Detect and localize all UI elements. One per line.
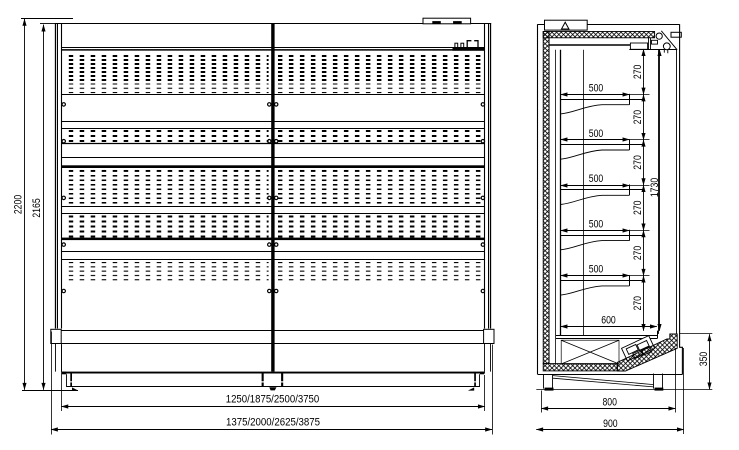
svg-text:270: 270 [632, 296, 644, 311]
svg-text:2200: 2200 [12, 195, 24, 214]
svg-text:270: 270 [632, 110, 644, 125]
svg-text:900: 900 [603, 418, 618, 430]
svg-text:500: 500 [589, 128, 604, 140]
svg-text:500: 500 [589, 83, 604, 95]
svg-text:500: 500 [589, 173, 604, 185]
svg-text:500: 500 [589, 218, 604, 230]
svg-text:1250/1875/2500/3750: 1250/1875/2500/3750 [226, 393, 320, 405]
svg-text:1375/2000/2625/3875: 1375/2000/2625/3875 [226, 417, 320, 429]
svg-text:600: 600 [601, 315, 616, 327]
svg-text:500: 500 [589, 264, 604, 276]
svg-text:800: 800 [602, 396, 617, 408]
svg-text:350: 350 [698, 352, 710, 367]
svg-text:270: 270 [632, 246, 644, 261]
svg-text:2165: 2165 [31, 198, 43, 217]
svg-text:270: 270 [632, 200, 644, 215]
svg-text:270: 270 [632, 155, 644, 170]
svg-text:270: 270 [632, 65, 644, 80]
svg-text:1730: 1730 [649, 178, 661, 197]
